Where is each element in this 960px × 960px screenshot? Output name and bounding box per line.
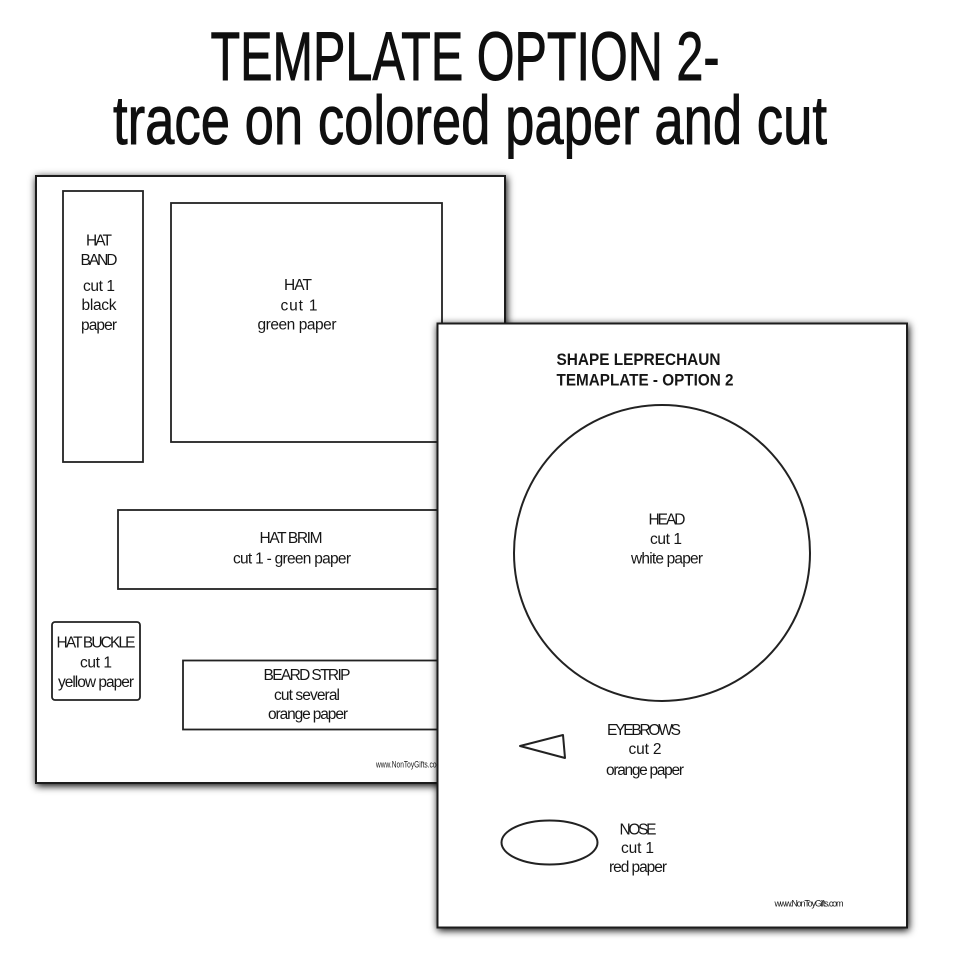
svg-text:HAT: HAT <box>86 233 113 250</box>
svg-text:paper: paper <box>81 317 117 334</box>
svg-text:HAT BRIM: HAT BRIM <box>260 530 323 547</box>
svg-text:orange paper: orange paper <box>606 762 684 779</box>
svg-text:www.NonToyGifts.com: www.NonToyGifts.com <box>375 760 442 770</box>
svg-text:cut 1: cut 1 <box>650 531 682 548</box>
svg-text:cut 1: cut 1 <box>83 278 115 295</box>
svg-text:orange paper: orange paper <box>268 706 348 723</box>
svg-text:TEMAPLATE - OPTION 2: TEMAPLATE - OPTION 2 <box>557 372 734 390</box>
svg-text:BEARD STRIP: BEARD STRIP <box>264 667 351 684</box>
svg-text:cut 2: cut 2 <box>629 741 662 758</box>
svg-text:HAT BUCKLE: HAT BUCKLE <box>57 635 136 652</box>
svg-text:HEAD: HEAD <box>649 512 686 529</box>
svg-text:yellow paper: yellow paper <box>58 674 134 691</box>
svg-text:cut 1: cut 1 <box>80 655 112 672</box>
svg-text:NOSE: NOSE <box>620 821 657 838</box>
svg-text:HAT: HAT <box>284 277 313 294</box>
svg-text:cut 1: cut 1 <box>281 298 318 315</box>
svg-text:cut 1 - green paper: cut 1 - green paper <box>233 550 351 567</box>
svg-text:green paper: green paper <box>258 317 337 334</box>
svg-text:red paper: red paper <box>609 859 667 876</box>
svg-text:white paper: white paper <box>630 551 703 568</box>
svg-text:BAND: BAND <box>81 252 118 269</box>
svg-text:black: black <box>82 297 117 314</box>
svg-text:EYEBROWS: EYEBROWS <box>607 722 681 739</box>
svg-text:cut several: cut several <box>274 687 340 704</box>
svg-text:SHAPE LEPRECHAUN: SHAPE LEPRECHAUN <box>557 351 721 369</box>
svg-text:trace on colored paper and cut: trace on colored paper and cut <box>113 82 827 159</box>
svg-text:www.NonToyGifts.com: www.NonToyGifts.com <box>774 899 844 909</box>
svg-text:cut 1: cut 1 <box>621 840 654 857</box>
